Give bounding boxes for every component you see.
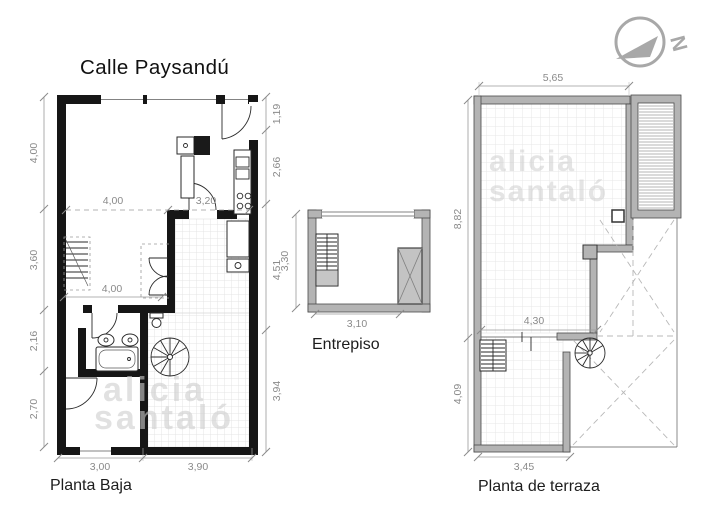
dim-interior-1: 4,00 <box>103 195 124 207</box>
dim-bottom-1: 3,00 <box>90 461 111 473</box>
tz-dim-left-lower: 4,09 <box>452 384 464 405</box>
dim-left-2: 3,60 <box>28 250 40 271</box>
dim-left-1: 4,00 <box>28 143 40 164</box>
entrepiso-label: Entrepiso <box>312 336 380 353</box>
tz-dim-left-upper: 8,82 <box>452 209 464 230</box>
dim-interior-2: 3,20 <box>196 195 217 207</box>
ep-stair <box>316 234 338 286</box>
floorplan-sheet: Calle Paysandú N <box>0 0 720 532</box>
ep-shaft <box>398 248 422 304</box>
tz-dim-top: 5,65 <box>543 72 564 84</box>
tz-stair <box>480 340 506 371</box>
louver-hatch <box>639 106 673 208</box>
window <box>147 95 216 104</box>
kitchen-appliance <box>194 136 210 155</box>
entry-door <box>222 104 251 139</box>
terraza-plan: 5,65 8,82 4,09 4,30 3,45 alicia santaló … <box>452 72 681 495</box>
counter-sink-unit <box>227 259 249 272</box>
bathtub <box>96 347 138 371</box>
toilet <box>152 319 161 328</box>
dim-right-2: 2,66 <box>271 157 283 178</box>
bidet <box>122 334 138 346</box>
terraza-label: Planta de terraza <box>478 478 600 495</box>
window <box>80 447 111 455</box>
dim-right-1: 1,19 <box>271 104 283 125</box>
planta-baja-label: Planta Baja <box>50 477 132 494</box>
dim-left-3: 2,16 <box>28 331 40 352</box>
dim-interior-3: 4,00 <box>102 283 123 295</box>
tz-dim-interior: 4,30 <box>524 315 545 327</box>
ep-dim-left: 3,30 <box>279 251 291 272</box>
watermark-line2: santaló <box>489 175 608 208</box>
ep-dim-bottom: 3,10 <box>347 318 368 330</box>
watermark-line1: alicia <box>489 145 576 178</box>
tz-spiral-stair <box>575 338 605 368</box>
double-door <box>149 258 168 295</box>
column <box>612 210 624 222</box>
dim-right-4: 3,94 <box>271 381 283 402</box>
dim-left-4: 2,70 <box>28 399 40 420</box>
tz-dim-bottom: 3,45 <box>514 461 535 473</box>
counter-unit <box>227 221 249 257</box>
sink <box>98 334 114 346</box>
entry-opening <box>249 102 258 140</box>
window <box>101 95 143 104</box>
north-circle <box>616 18 664 66</box>
ep-window <box>322 210 414 218</box>
north-label: N <box>665 33 691 54</box>
dim-bottom-2: 3,90 <box>188 461 209 473</box>
pb-stair <box>64 237 90 290</box>
floorplan-drawing: Calle Paysandú N <box>0 0 720 532</box>
column <box>583 245 597 259</box>
kitchen-island <box>177 137 194 154</box>
north-arrow: N <box>616 18 691 66</box>
kitchen-table <box>181 156 194 198</box>
window <box>225 95 248 104</box>
toilet-tank <box>150 313 163 318</box>
pb-overhead-dashed-outline <box>141 244 169 298</box>
watermark-line2: santaló <box>94 399 234 437</box>
rear-room-door <box>66 378 97 409</box>
planta-baja-plan: 4,00 3,60 2,16 2,70 1,19 2,66 4,51 3,94 … <box>28 93 283 494</box>
page-title: Calle Paysandú <box>80 56 229 79</box>
tz-pergola <box>631 95 681 218</box>
north-triangle-icon <box>616 36 658 59</box>
entrepiso-plan: 3,30 3,10 Entrepiso <box>279 210 430 353</box>
